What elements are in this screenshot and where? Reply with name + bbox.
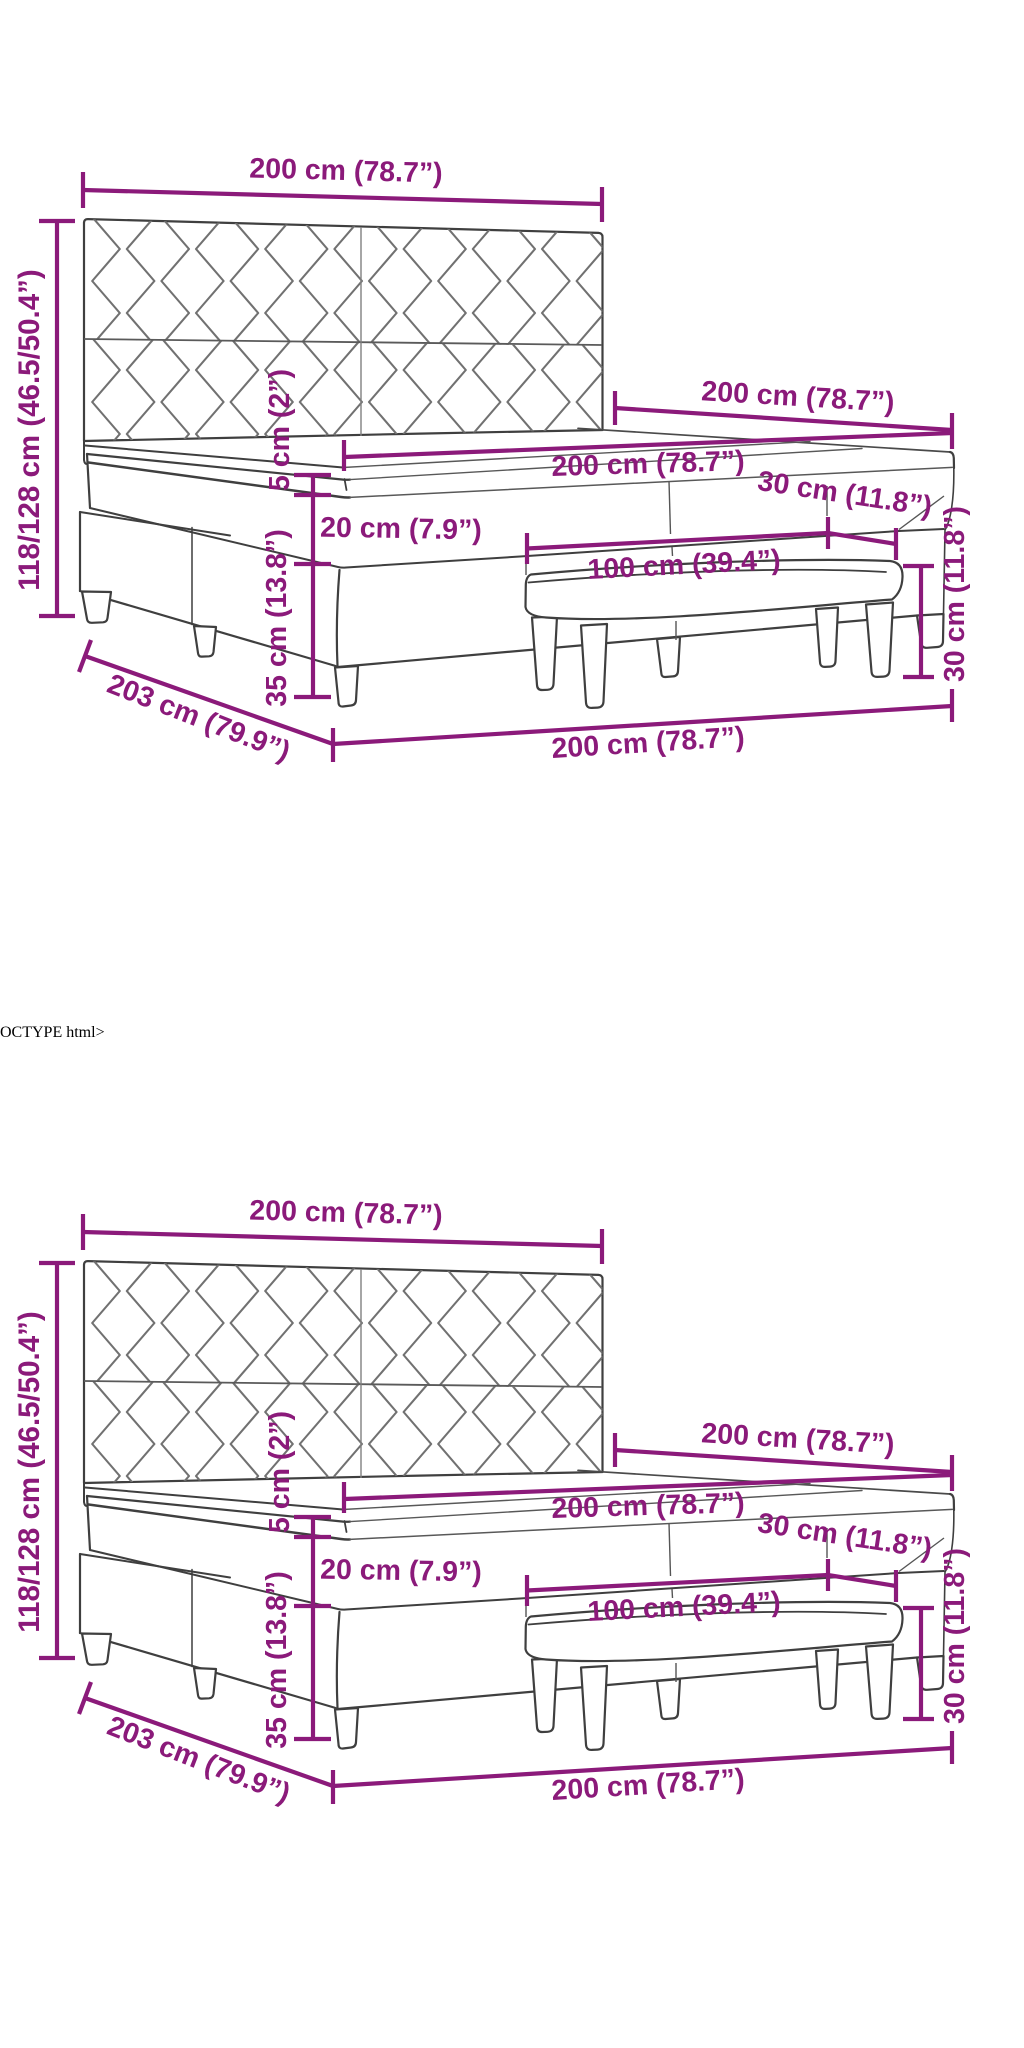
- svg-text:30 cm (11.8”): 30 cm (11.8”): [756, 465, 935, 523]
- svg-text:20 cm (7.9”): 20 cm (7.9”): [320, 1554, 482, 1589]
- svg-text:200 cm (78.7”): 200 cm (78.7”): [701, 375, 896, 418]
- svg-text:35 cm (13.8”): 35 cm (13.8”): [261, 529, 293, 706]
- svg-text:200 cm (78.7”): 200 cm (78.7”): [551, 445, 745, 483]
- svg-text:30 cm (11.8”): 30 cm (11.8”): [939, 506, 971, 682]
- svg-text:30 cm (11.8”): 30 cm (11.8”): [939, 1548, 971, 1724]
- svg-text:118/128 cm (46.5/50.4”): 118/128 cm (46.5/50.4”): [13, 269, 46, 590]
- svg-text:5 cm (2”): 5 cm (2”): [264, 369, 296, 491]
- svg-text:118/128 cm (46.5/50.4”): 118/128 cm (46.5/50.4”): [13, 1311, 46, 1632]
- svg-text:200 cm (78.7”): 200 cm (78.7”): [701, 1417, 896, 1460]
- svg-text:200 cm (78.7”): 200 cm (78.7”): [249, 1194, 443, 1231]
- svg-text:35 cm (13.8”): 35 cm (13.8”): [261, 1571, 293, 1748]
- svg-text:5 cm (2”): 5 cm (2”): [264, 1411, 296, 1533]
- svg-text:200 cm (78.7”): 200 cm (78.7”): [551, 1487, 745, 1525]
- svg-text:30 cm (11.8”): 30 cm (11.8”): [756, 1507, 935, 1565]
- svg-text:20 cm (7.9”): 20 cm (7.9”): [320, 512, 482, 547]
- svg-text:200 cm (78.7”): 200 cm (78.7”): [249, 152, 443, 189]
